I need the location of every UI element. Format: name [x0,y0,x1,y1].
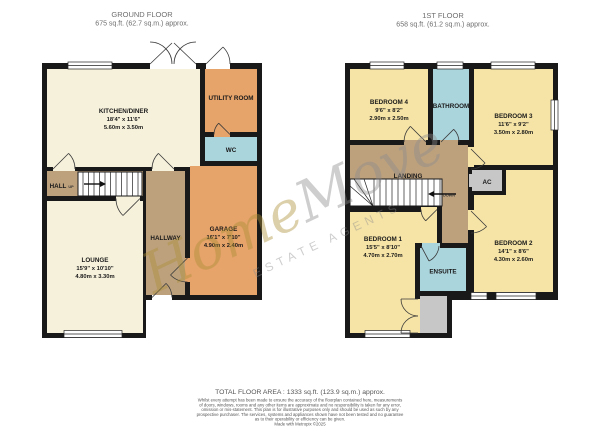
label-utility: UTILITY ROOM [208,95,253,102]
label-bedroom1-imperial: 15'5" x 8'10" [366,245,400,251]
utility-wc-opening [214,132,230,137]
footer: TOTAL FLOOR AREA : 1333 sq.ft. (123.9 sq… [197,389,404,427]
label-lounge-imperial: 15'9" x 10'10" [76,266,114,272]
label-bedroom4-name: BEDROOM 4 [370,99,409,106]
label-kitchen-name: KITCHEN/DINER [99,108,149,115]
ac-opening [469,174,473,187]
credit-line: Made with Metropix ©2025 [274,422,326,427]
first-floor-area: 658 sq.ft. (61.2 sq.m.) approx. [396,22,489,29]
utility-exterior-door [206,47,230,64]
label-bedroom3-imperial: 11'6" x 9'2" [498,122,529,128]
kitchen-hallway-opening [152,167,174,171]
kitchen-hall-opening [53,167,75,171]
label-bedroom2-metric: 4.30m x 2.60m [494,257,533,263]
bedroom1-opening [421,207,437,212]
french-door-left [150,42,172,64]
label-bedroom2-name: BEDROOM 2 [494,240,533,247]
ground-floor-title: GROUND FLOOR [111,10,173,19]
floorplan-page: GROUND FLOOR 675 sq.ft. (62.7 sq.m.) app… [0,0,600,431]
label-bedroom2-imperial: 14'1" x 8'6" [498,249,529,255]
stairs-up [78,172,142,196]
room-storage [420,296,447,333]
label-lounge-metric: 4.80m x 3.30m [75,274,114,280]
label-lounge-name: LOUNGE [82,257,109,264]
label-bedroom4-imperial: 9'6" x 8'2" [375,108,403,114]
lounge-opening [116,197,140,202]
label-down: DOWN [443,194,455,198]
bedroom3-opening [468,147,474,167]
label-ac: AC [482,179,492,186]
french-door-opening [150,62,196,69]
label-kitchen-imperial: 18'4" x 11'6" [107,117,141,123]
label-ensuite: ENSUITE [429,269,456,276]
floorplan-canvas: GROUND FLOOR 675 sq.ft. (62.7 sq.m.) app… [0,0,600,431]
first-floor-title: 1ST FLOOR [422,11,464,20]
label-up: UP [68,185,74,189]
total-floor-area: TOTAL FLOOR AREA : 1333 sq.ft. (123.9 sq… [215,389,385,396]
label-bedroom3-metric: 3.50m x 2.80m [494,130,533,136]
utility-door-opening [206,62,230,69]
label-bedroom3-name: BEDROOM 3 [494,113,533,120]
label-bedroom1-name: BEDROOM 1 [364,236,403,243]
ground-floor-area: 675 sq.ft. (62.7 sq.m.) approx. [95,21,188,28]
ensuite-opening [422,243,440,248]
label-kitchen-metric: 5.60m x 3.50m [104,125,143,131]
ground-floor-plan: KITCHEN/DINER 18'4" x 11'6" 5.60m x 3.50… [42,42,262,338]
label-bedroom1-metric: 4.70m x 2.70m [363,253,402,259]
french-door-right [174,42,196,64]
label-wc: WC [226,147,237,154]
label-bathroom: BATHROOM [433,103,470,110]
label-hall: HALL [50,183,67,190]
